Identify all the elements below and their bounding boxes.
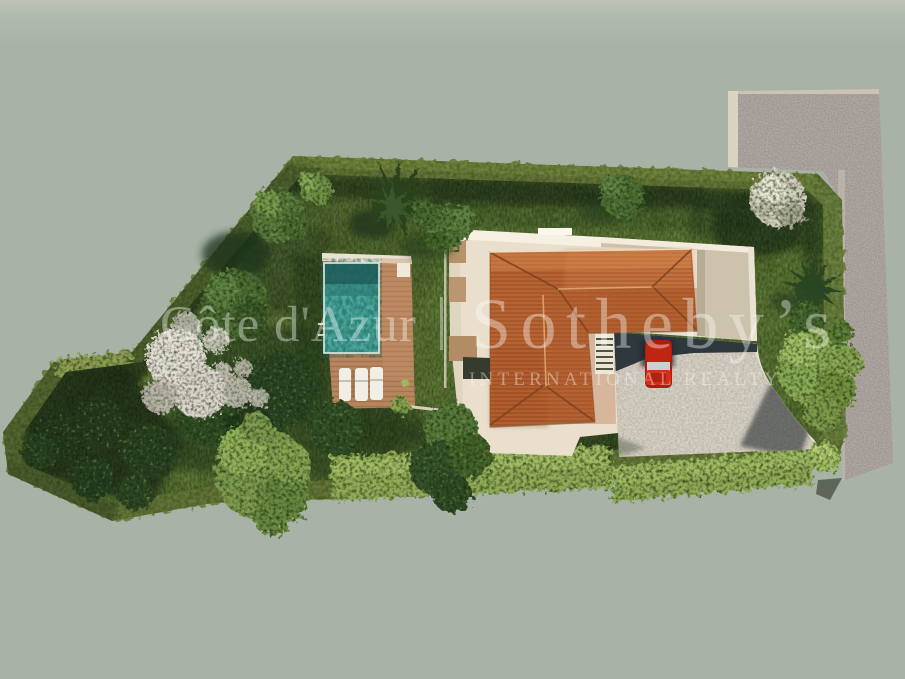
svg-text:Côte d'Azur: Côte d'Azur [160,297,417,353]
svg-text:Sotheby’s: Sotheby’s [471,284,841,364]
svg-text:INTERNATIONAL REALTY: INTERNATIONAL REALTY [469,369,782,390]
